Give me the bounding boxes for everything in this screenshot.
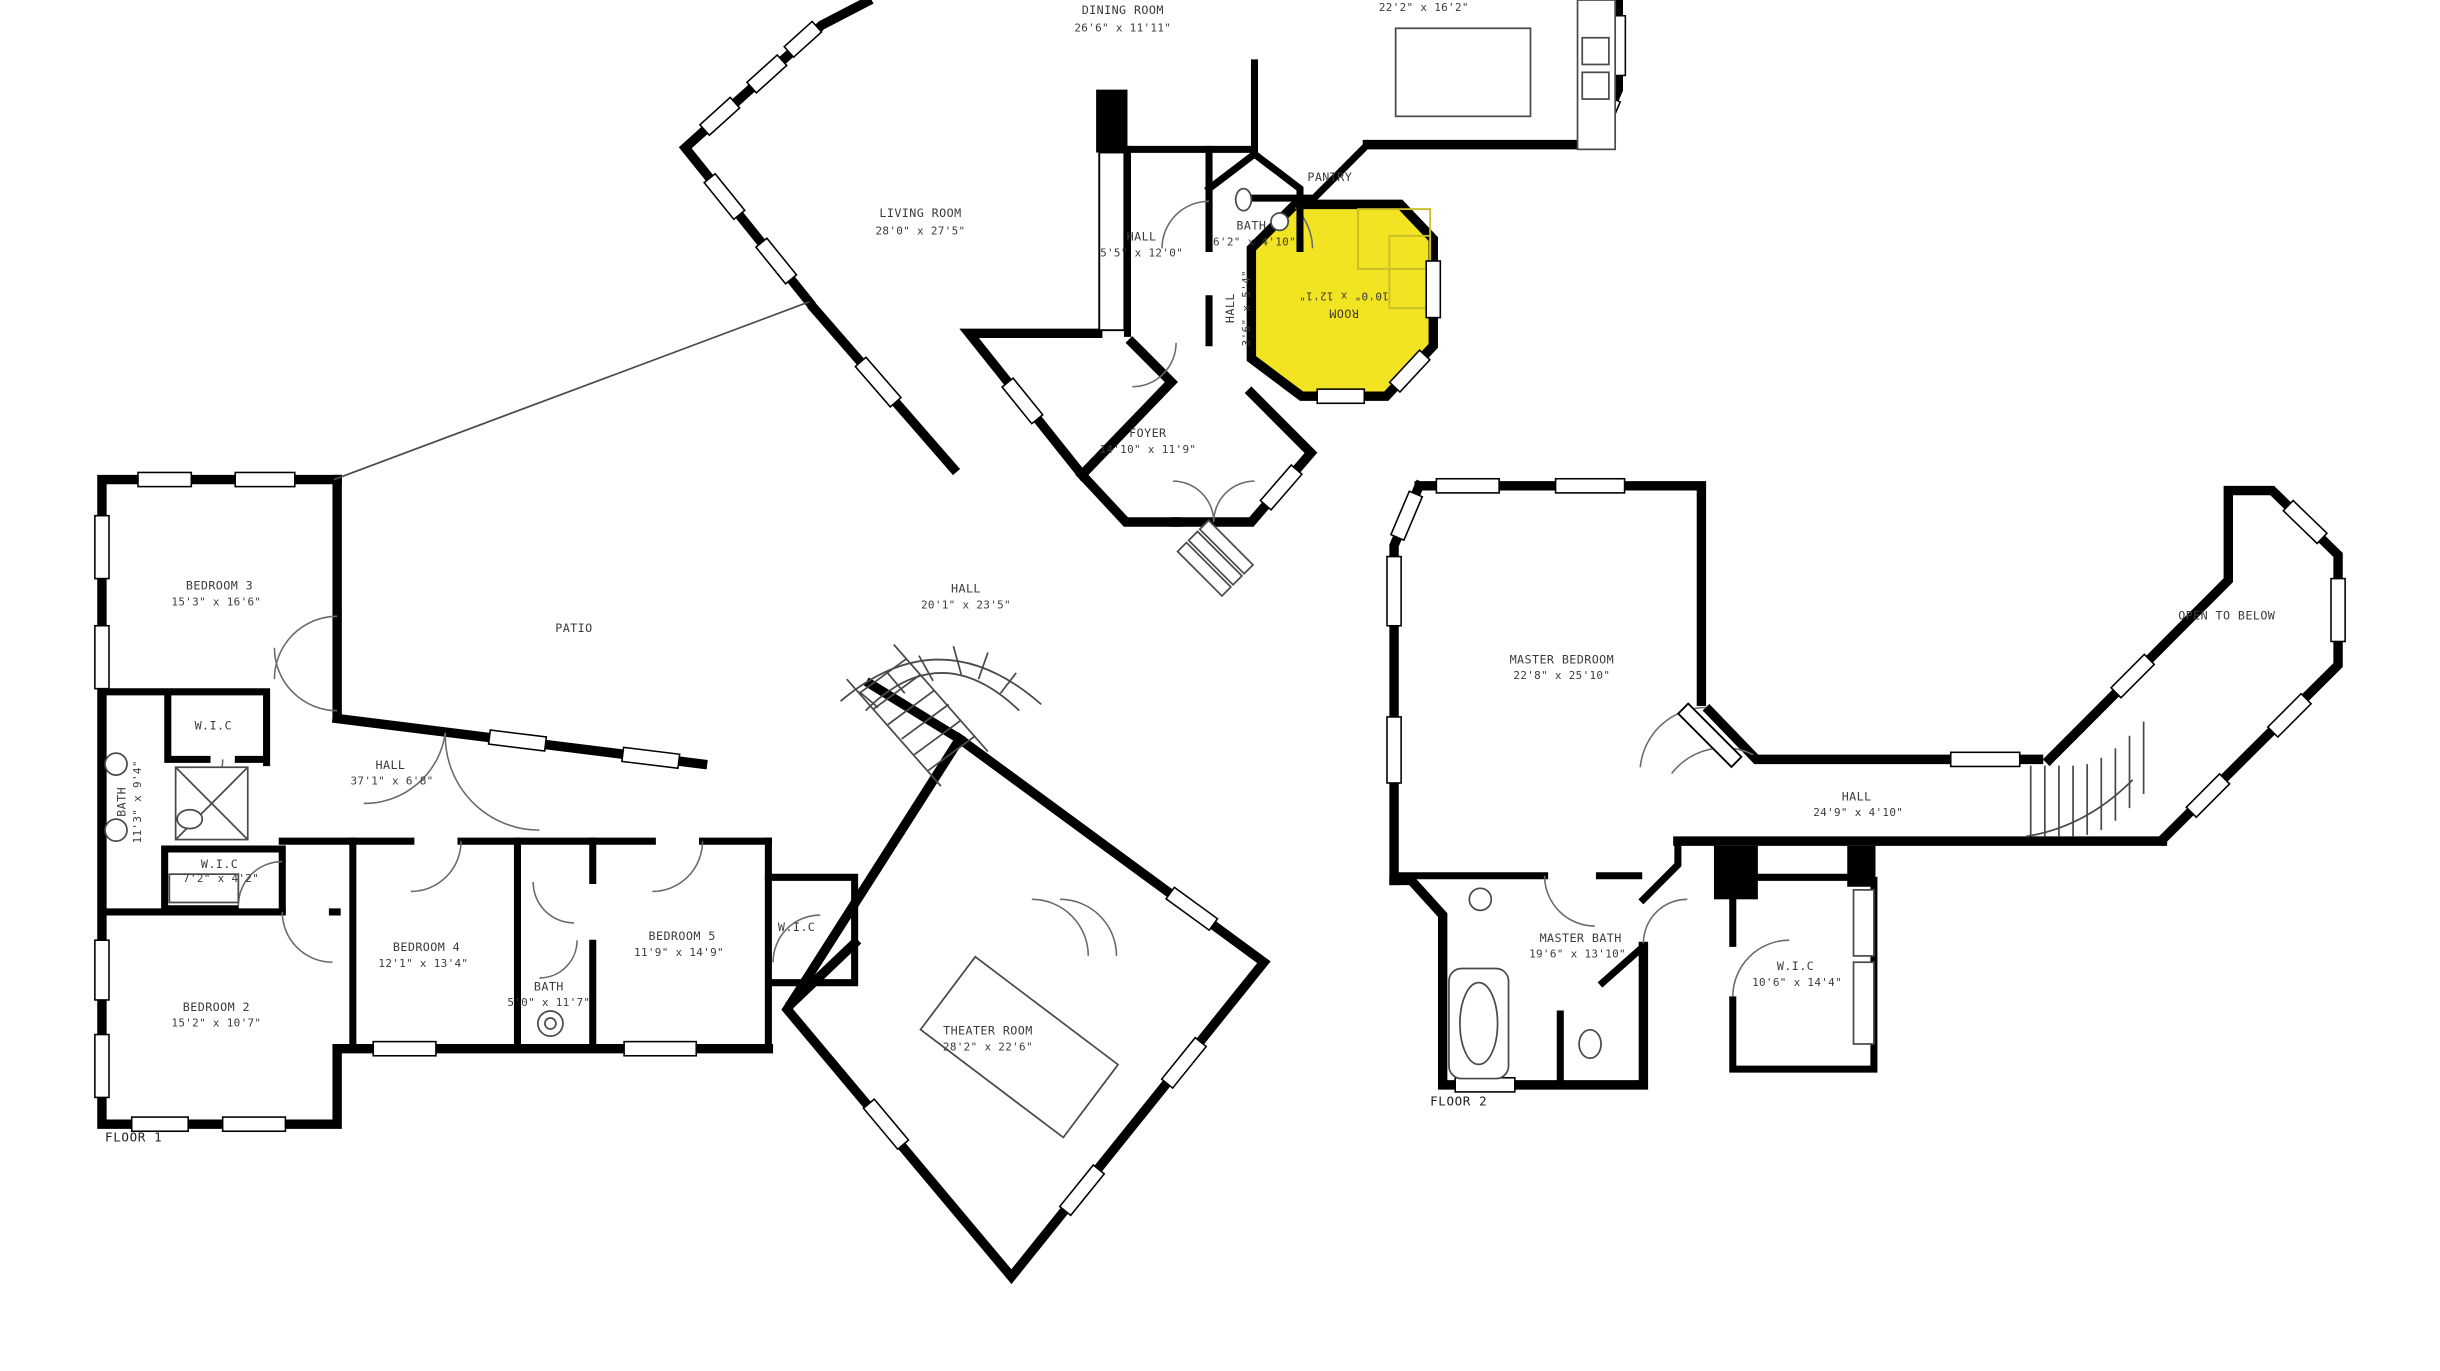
dims-bath-hall: 5'0" x 11'7" bbox=[507, 996, 590, 1009]
main-bath-sink-2 bbox=[105, 819, 127, 841]
label-foyer: FOYER bbox=[1129, 426, 1167, 440]
label-wic-bedroom2: W.I.C bbox=[201, 857, 238, 871]
floor1-title: FLOOR 1 bbox=[105, 1129, 162, 1144]
label-bedroom2: BEDROOM 2 bbox=[183, 1000, 250, 1014]
dims-living: 28'0" x 27'5" bbox=[876, 224, 966, 237]
patio-edge bbox=[334, 302, 809, 480]
floor-plan-drawing: DINING ROOM 26'6" x 11'11" 22'2" x 16'2"… bbox=[0, 0, 2440, 1371]
dims-hall-center: 20'1" x 23'5" bbox=[921, 598, 1011, 611]
label-wic-bedroom3: W.I.C bbox=[195, 719, 232, 733]
dims-master-bath: 19'6" x 13'10" bbox=[1529, 947, 1626, 960]
master-bath-toilet bbox=[1579, 1030, 1601, 1058]
kitchen-island bbox=[1396, 28, 1531, 116]
label-living: LIVING ROOM bbox=[879, 206, 961, 220]
dims-hall-floor2: 24'9" x 4'10" bbox=[1813, 806, 1903, 819]
dims-foyer: 14'10" x 11'9" bbox=[1099, 443, 1196, 456]
entry-steps bbox=[1178, 520, 1253, 596]
label-hall-upper: HALL bbox=[1127, 230, 1157, 244]
master-bath-sink bbox=[1469, 888, 1491, 910]
label-hall-center: HALL bbox=[951, 582, 981, 596]
dims-wic-master: 10'6" x 14'4" bbox=[1752, 976, 1842, 989]
fireplace bbox=[1096, 90, 1127, 153]
label-patio: PATIO bbox=[555, 621, 592, 635]
dims-bath-main: 11'3" x 9'4" bbox=[131, 760, 144, 843]
label-bath-hall: BATH bbox=[534, 980, 564, 994]
label-wic-master: W.I.C bbox=[1777, 959, 1814, 973]
stairs-floor2 bbox=[2026, 722, 2144, 837]
wic2-shelf-2 bbox=[1854, 962, 1874, 1044]
main-bath-toilet bbox=[177, 810, 202, 829]
label-bedroom5: BEDROOM 5 bbox=[649, 929, 716, 943]
label-bedroom3: BEDROOM 3 bbox=[186, 579, 253, 593]
label-powder-bath: BATH bbox=[1236, 219, 1266, 233]
dims-hall-upper: 5'5" x 12'0" bbox=[1100, 246, 1183, 259]
label-master-bedroom: MASTER BEDROOM bbox=[1510, 652, 1615, 666]
dims-hall-bedrooms: 37'1" x 6'8" bbox=[351, 775, 434, 788]
dims-dining: 26'6" x 11'11" bbox=[1074, 21, 1171, 34]
dims-hall-small: 3'6" x 5'4" bbox=[1240, 270, 1253, 346]
label-theater: THEATER ROOM bbox=[943, 1024, 1033, 1038]
label-wic-bedroom5: W.I.C bbox=[778, 920, 815, 934]
label-pantry: PANTRY bbox=[1307, 170, 1352, 184]
main-bath-sink-1 bbox=[105, 753, 127, 775]
dims-theater: 28'2" x 22'6" bbox=[943, 1040, 1033, 1053]
dims-wic-bedroom2: 7'2" x 4'2" bbox=[183, 872, 259, 885]
dims-bedroom4: 12'1" x 13'4" bbox=[378, 957, 468, 970]
dims-bedroom3: 15'3" x 16'6" bbox=[171, 595, 261, 608]
floorplan-canvas: DINING ROOM 26'6" x 11'11" 22'2" x 16'2"… bbox=[0, 0, 2440, 1371]
dims-master-bedroom: 22'8" x 25'10" bbox=[1513, 669, 1610, 682]
label-master-bath: MASTER BATH bbox=[1540, 931, 1622, 945]
label-hall-bedrooms: HALL bbox=[376, 758, 406, 772]
label-hall-floor2: HALL bbox=[1842, 789, 1872, 803]
label-open-to-below: OPEN TO BELOW bbox=[2178, 608, 2276, 622]
label-bath-main: BATH bbox=[114, 787, 128, 817]
dims-powder-bath: 6'2" x 4'10" bbox=[1213, 235, 1296, 248]
label-dining: DINING ROOM bbox=[1082, 3, 1164, 17]
dims-bedroom5: 11'9" x 14'9" bbox=[634, 946, 724, 959]
label-hall-small: HALL bbox=[1223, 293, 1237, 323]
dims-kitchen: 22'2" x 16'2" bbox=[1379, 1, 1469, 14]
powder-toilet bbox=[1236, 189, 1252, 211]
room-labels: DINING ROOM 26'6" x 11'11" 22'2" x 16'2"… bbox=[105, 1, 2276, 1144]
powder-sink bbox=[1271, 213, 1288, 230]
dims-highlighted-room: 10'0" x 12'1" bbox=[1299, 289, 1389, 302]
windows bbox=[95, 16, 2345, 1216]
fixtures bbox=[105, 0, 1874, 1137]
dims-bedroom2: 15'2" x 10'7" bbox=[171, 1017, 261, 1030]
label-bedroom4: BEDROOM 4 bbox=[393, 940, 460, 954]
label-highlighted-room: ROOM bbox=[1329, 307, 1359, 321]
floor2-title: FLOOR 2 bbox=[1430, 1093, 1487, 1108]
wic2-shelf-1 bbox=[1854, 890, 1874, 956]
